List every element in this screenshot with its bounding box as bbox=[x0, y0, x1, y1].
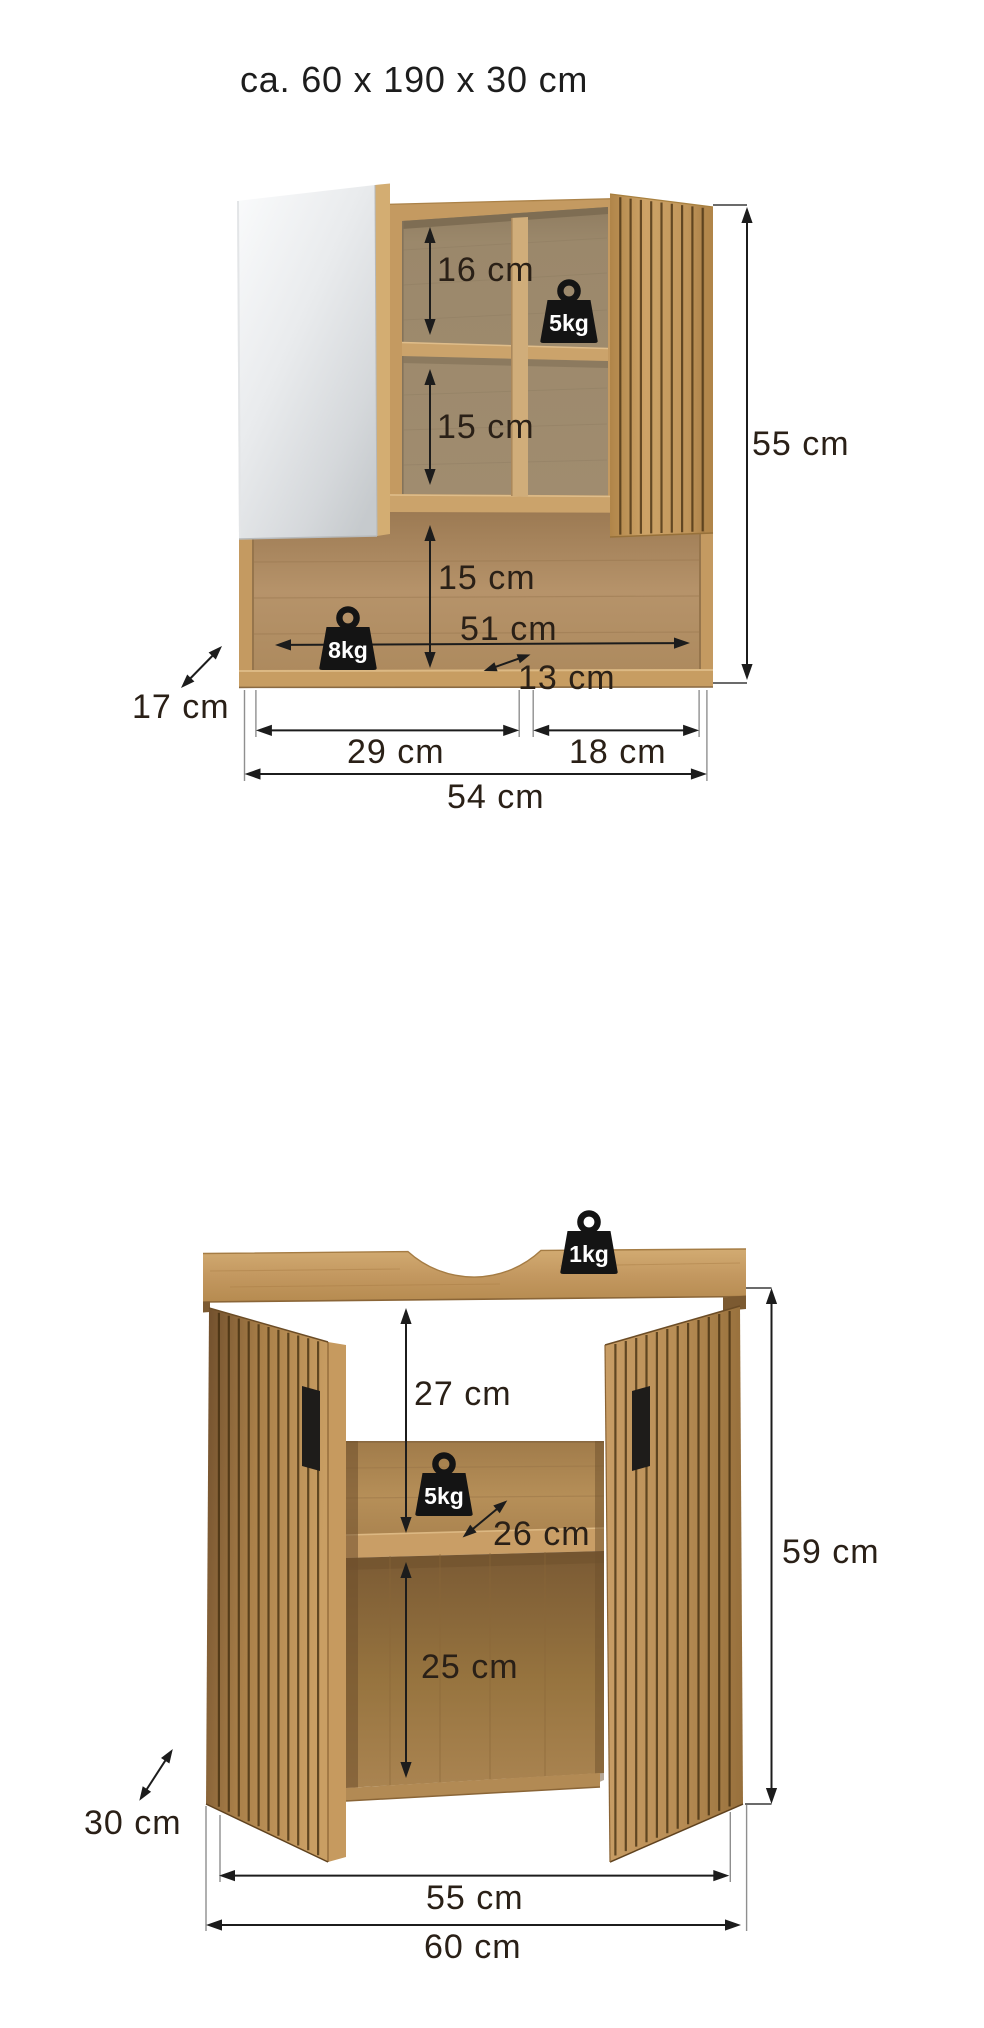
svg-text:1kg: 1kg bbox=[569, 1241, 609, 1267]
svg-text:30 cm: 30 cm bbox=[84, 1804, 182, 1842]
svg-text:59 cm: 59 cm bbox=[782, 1533, 880, 1571]
svg-text:27 cm: 27 cm bbox=[414, 1375, 512, 1413]
svg-text:55 cm: 55 cm bbox=[752, 425, 850, 463]
svg-text:26 cm: 26 cm bbox=[493, 1515, 591, 1553]
svg-text:5kg: 5kg bbox=[549, 310, 589, 336]
svg-text:8kg: 8kg bbox=[328, 637, 368, 663]
svg-text:54 cm: 54 cm bbox=[447, 778, 545, 816]
svg-text:55 cm: 55 cm bbox=[426, 1879, 524, 1917]
svg-text:29 cm: 29 cm bbox=[347, 733, 445, 771]
svg-text:15 cm: 15 cm bbox=[437, 408, 535, 446]
svg-text:ca. 60 x 190 x 30 cm: ca. 60 x 190 x 30 cm bbox=[240, 59, 588, 100]
svg-text:25 cm: 25 cm bbox=[421, 1648, 519, 1686]
svg-text:16 cm: 16 cm bbox=[437, 251, 535, 289]
svg-text:17 cm: 17 cm bbox=[132, 688, 230, 726]
svg-text:60 cm: 60 cm bbox=[424, 1928, 522, 1966]
svg-text:5kg: 5kg bbox=[424, 1483, 464, 1509]
svg-text:18 cm: 18 cm bbox=[569, 733, 667, 771]
svg-text:15 cm: 15 cm bbox=[438, 559, 536, 597]
svg-text:51 cm: 51 cm bbox=[460, 610, 558, 648]
